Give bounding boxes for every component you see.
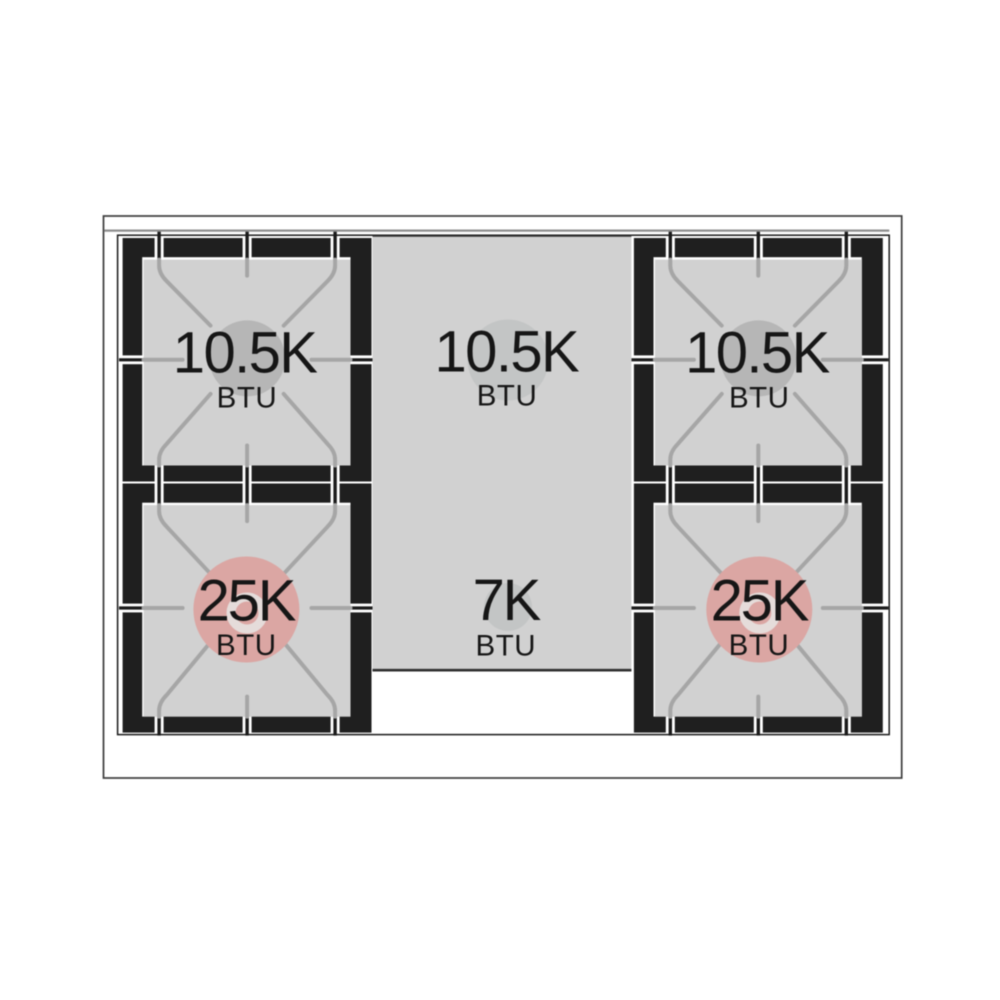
svg-text:BTU: BTU — [729, 629, 790, 662]
svg-text:BTU: BTU — [217, 382, 278, 415]
svg-text:25K: 25K — [711, 568, 810, 633]
svg-text:BTU: BTU — [216, 629, 277, 662]
svg-text:7K: 7K — [473, 568, 542, 633]
svg-text:10.5K: 10.5K — [435, 319, 580, 384]
svg-text:BTU: BTU — [476, 629, 537, 662]
svg-text:10.5K: 10.5K — [685, 320, 830, 385]
svg-text:BTU: BTU — [477, 379, 538, 412]
svg-text:BTU: BTU — [729, 382, 790, 415]
svg-text:25K: 25K — [198, 568, 297, 633]
svg-text:10.5K: 10.5K — [173, 320, 318, 385]
